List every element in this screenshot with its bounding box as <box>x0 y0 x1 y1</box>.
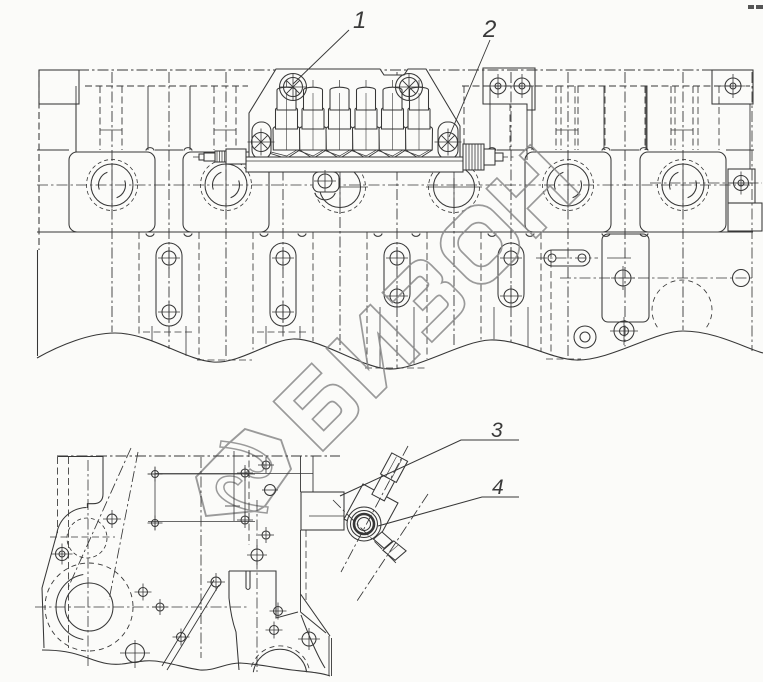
svg-text:4: 4 <box>492 476 504 499</box>
svg-text:3: 3 <box>491 419 503 442</box>
svg-text:2: 2 <box>482 16 496 43</box>
svg-text:1: 1 <box>353 7 366 34</box>
